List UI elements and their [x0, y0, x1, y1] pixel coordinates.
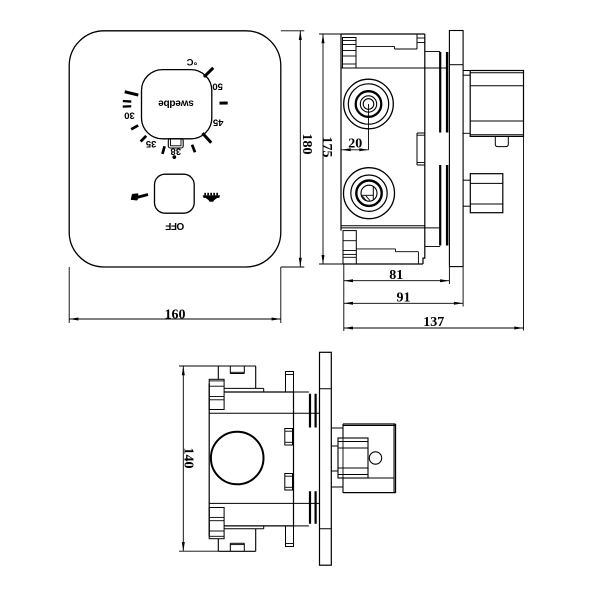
svg-text:°C: °C	[187, 56, 198, 67]
svg-text:175: 175	[319, 137, 334, 158]
svg-text:81: 81	[389, 268, 403, 283]
svg-text:swedbe: swedbe	[158, 97, 194, 108]
svg-text:OFF: OFF	[165, 220, 184, 231]
svg-text:35: 35	[145, 138, 156, 149]
svg-text:45: 45	[212, 117, 223, 128]
svg-text:140: 140	[181, 448, 196, 469]
svg-text:137: 137	[423, 315, 444, 330]
svg-text:91: 91	[397, 291, 411, 306]
svg-text:38: 38	[171, 145, 182, 156]
svg-text:180: 180	[299, 134, 314, 155]
svg-text:50: 50	[212, 80, 223, 91]
svg-text:160: 160	[165, 307, 186, 322]
svg-text:30: 30	[124, 110, 135, 121]
